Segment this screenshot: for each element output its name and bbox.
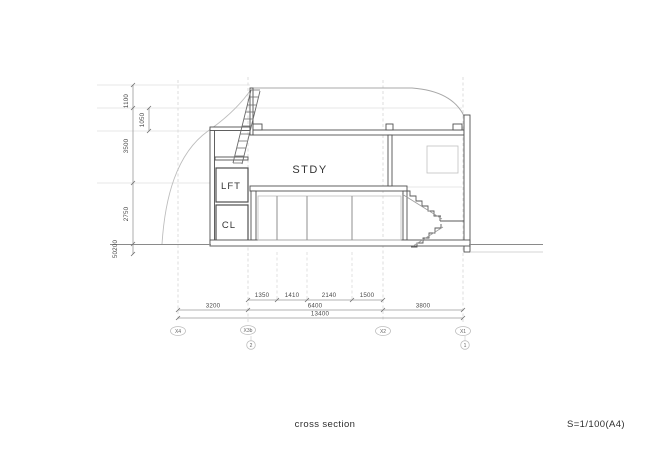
grid-bubble-x4-label: X4 [175,329,181,335]
ground-slab [210,240,470,246]
left-dim-ticks [131,83,151,256]
building-section [210,88,470,252]
roof-curb-mid [386,124,393,130]
dim-left-1100: 1100 [123,94,130,108]
right-wall [464,115,470,252]
drawing-scale: S=1/100(A4) [567,419,625,430]
study-floor-slab [250,186,407,191]
roof-slab [253,130,464,135]
dim-3200: 3200 [206,303,221,310]
dim-left-3500: 3500 [123,138,130,153]
stairwell-window [427,146,458,173]
room-label-cl: CL [222,220,236,231]
stairwell-wall-2f [388,135,392,186]
grid-bubble-x2-label: X2 [380,329,386,335]
stair-upper-flight-steps [404,191,441,216]
room-label-lft: LFT [221,181,241,192]
glazing-mullions [277,196,352,240]
dim-3800: 3800 [416,303,431,310]
cross-section-drawing: X4 X3b X2 X1 2 1 STDY LFT CL 1100 1050 3… [0,0,650,459]
first-floor-left-wall [251,191,256,240]
grid-bubble-leaders [251,336,465,341]
dim-left-1050: 1050 [139,112,146,127]
left-wall [210,128,215,244]
titleblock: cross section S=1/100(A4) [295,419,625,430]
grid-bubble-2-label: 2 [250,343,253,349]
roof-curb-right [453,124,462,130]
dim-6400: 6400 [308,303,323,310]
parapet-top-slab [210,127,250,131]
roof-curb-left [253,124,262,130]
stair-landing-line [440,216,464,221]
left-dim-lines [133,85,149,254]
drawing-title: cross section [295,419,356,430]
stair-stringers [402,194,443,246]
first-floor-glazing [258,196,401,240]
cross-section-sheet: X4 X3b X2 X1 2 1 STDY LFT CL 1100 1050 3… [0,0,650,459]
stairwell-wall-1f [403,191,407,240]
dim-1410: 1410 [285,292,300,299]
dim-left-50200: 50200 [112,240,119,259]
grid-bubble-x1-label: X1 [460,329,466,335]
grid-lines [97,77,463,322]
room-label-stdy: STDY [292,164,327,176]
dim-1500: 1500 [360,292,375,299]
dim-1350: 1350 [255,292,270,299]
dim-left-2750: 2750 [123,206,130,221]
top-roof-line [253,88,464,116]
grid-bubbles: X4 X3b X2 X1 2 1 [171,326,471,350]
grid-bubble-1-label: 1 [464,343,467,349]
glazing-frame [258,196,401,240]
grid-bubble-x3b-label: X3b [244,328,253,334]
dim-13400: 13400 [311,311,330,318]
stair [402,191,464,247]
level-reference-lines [97,85,462,187]
dim-2140: 2140 [322,292,337,299]
